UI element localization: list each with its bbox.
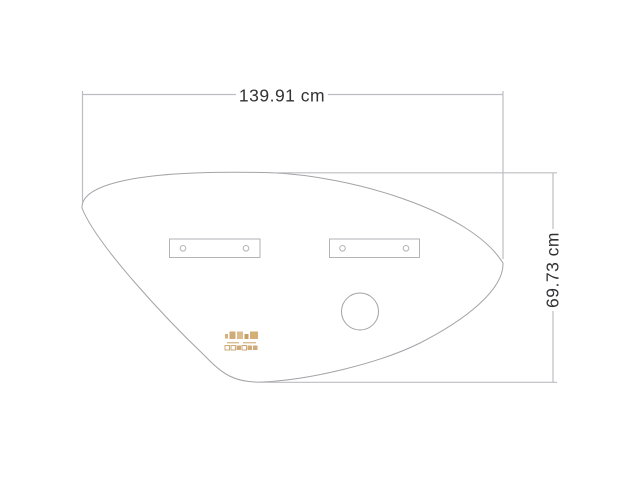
height-dimension-lines xyxy=(258,173,557,382)
height-dimension-label: 69.73 cm xyxy=(543,229,562,311)
panel-outline xyxy=(82,172,503,382)
bracket-hole xyxy=(243,246,249,252)
mounting-bracket-right xyxy=(330,239,420,258)
bracket-hole xyxy=(340,246,346,252)
bracket-hole xyxy=(403,246,409,252)
circular-cutout xyxy=(342,293,379,330)
brand-logo-icon xyxy=(225,332,258,351)
width-dimension-label: 139.91 cm xyxy=(236,86,328,105)
bracket-plate xyxy=(170,239,261,258)
bracket-plate xyxy=(330,239,420,258)
width-dimension-lines xyxy=(82,91,503,259)
drawing-canvas: 139.91 cm 69.73 cm xyxy=(0,0,640,480)
mounting-bracket-left xyxy=(170,239,261,258)
bracket-hole xyxy=(180,246,186,252)
